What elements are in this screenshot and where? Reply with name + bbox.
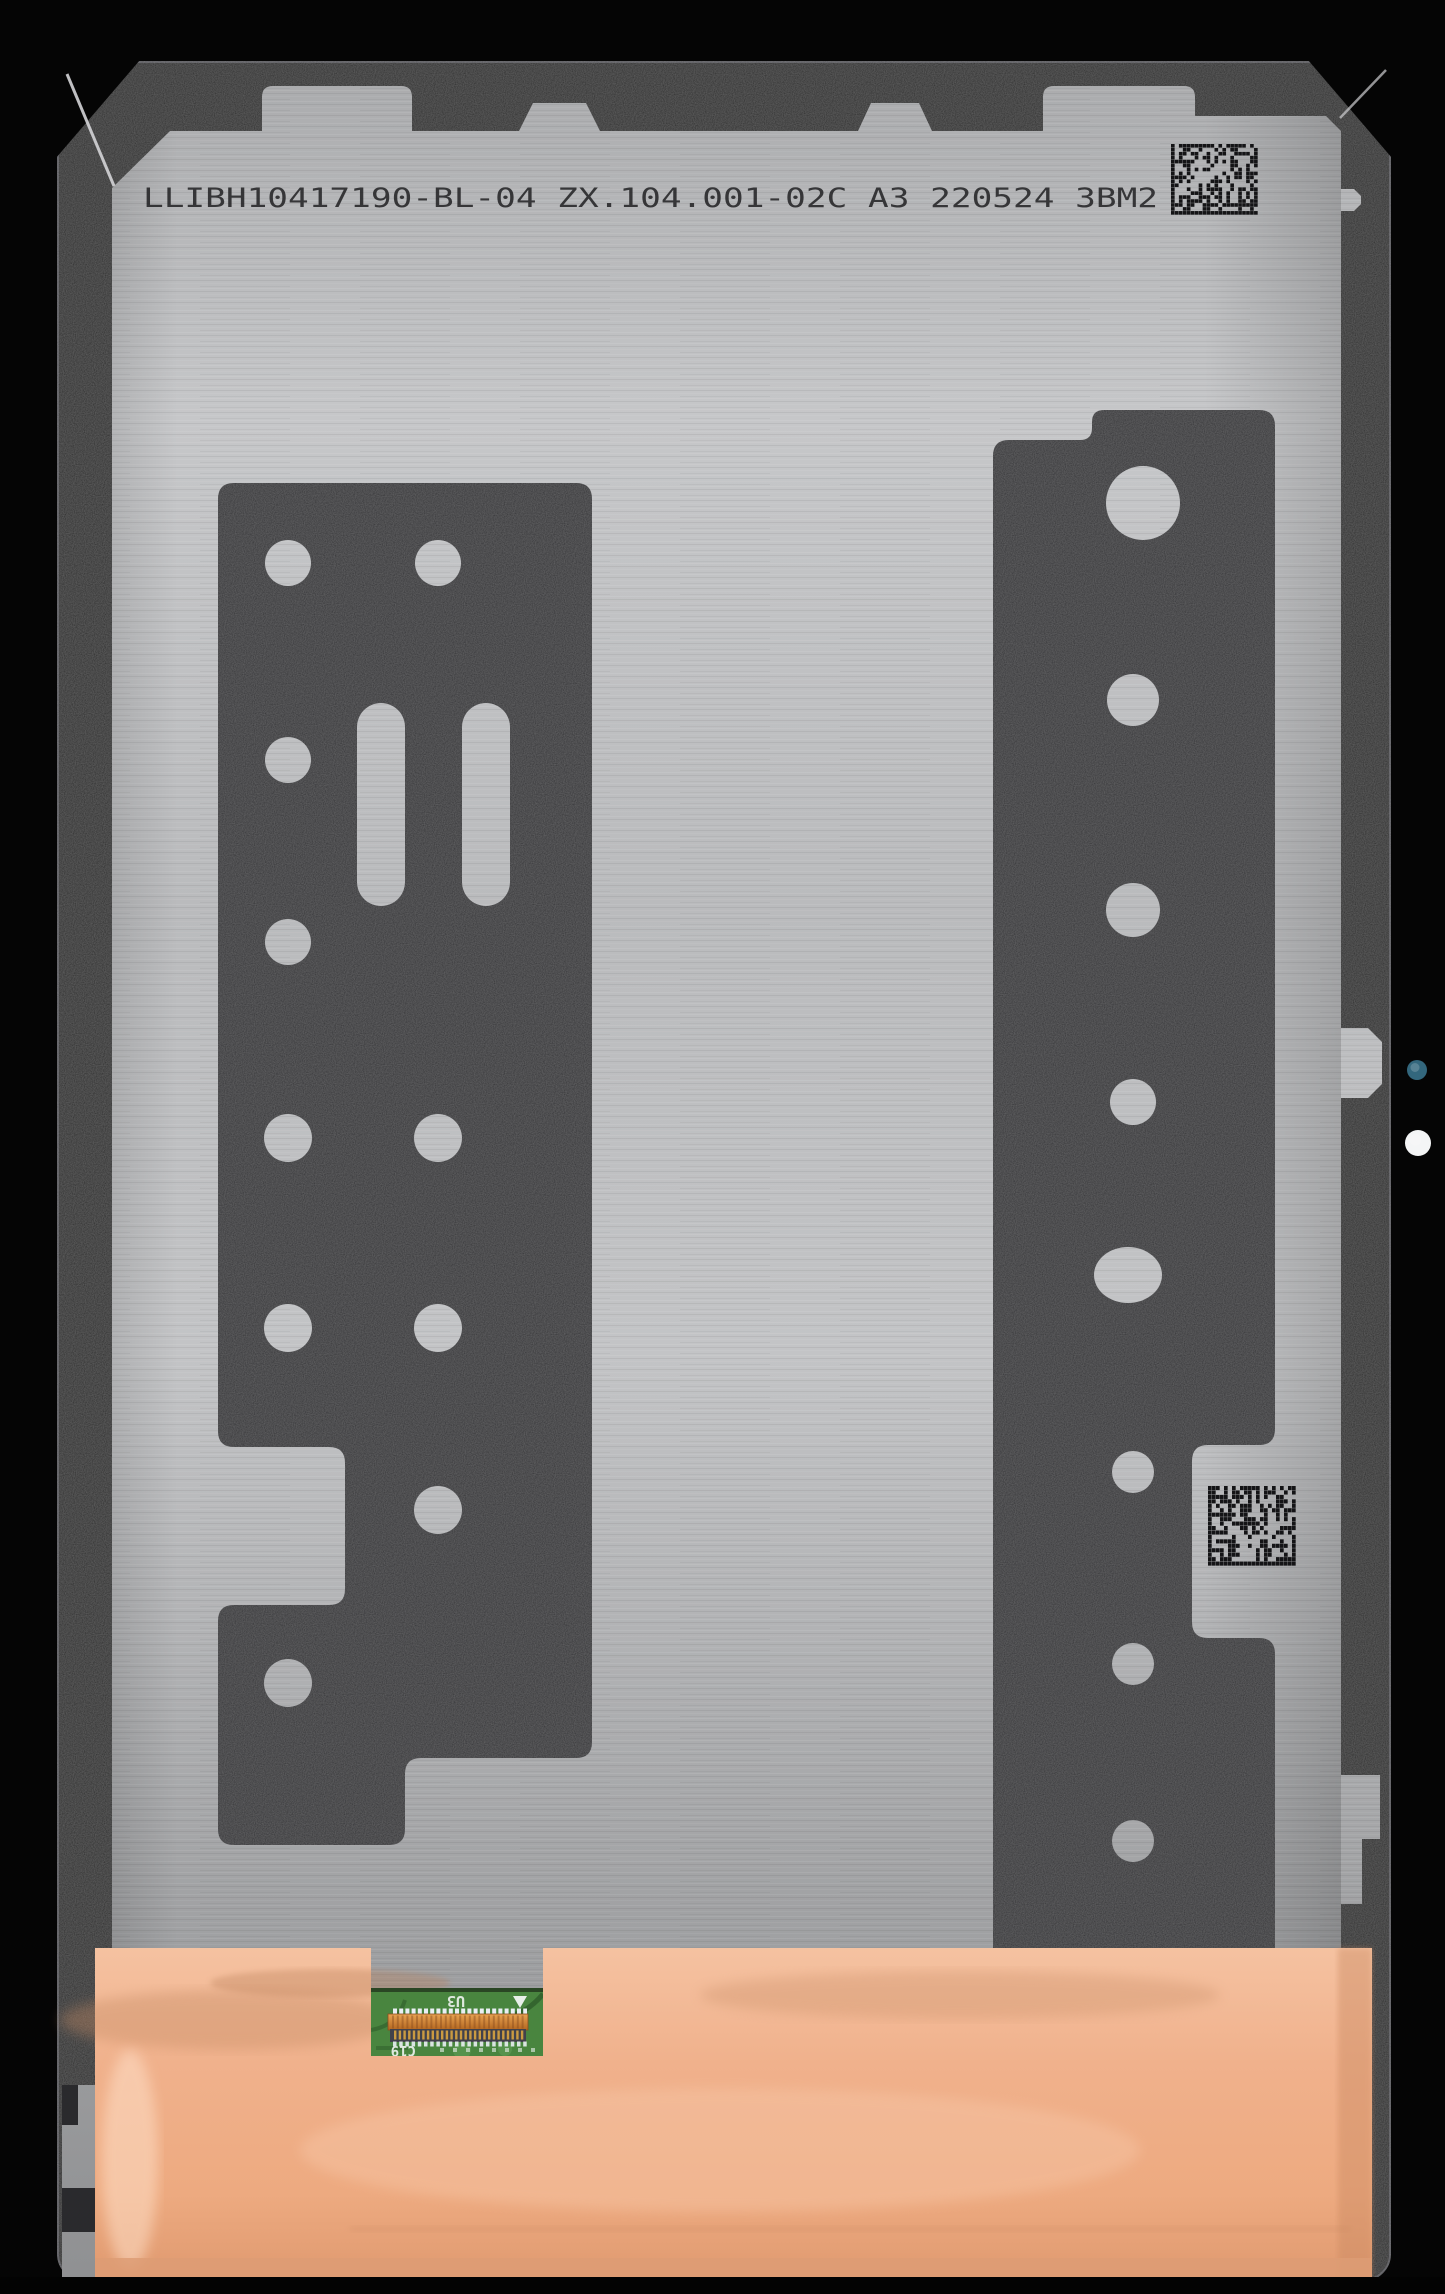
strip-hole-texture [1106,883,1160,937]
strip-hole-texture [414,1304,462,1352]
strip-hole-texture [1094,1247,1162,1303]
white-sensor-dot-highlight [1410,1134,1422,1146]
bottom-frame-strip [0,2277,1445,2294]
adhesive-strip-right [993,410,1275,1948]
strip-hole-texture [1112,1451,1154,1493]
photo-canvas: LLIBH10417190-BL-04 ZX.104.001-02C A3 22… [0,0,1445,2294]
copper-fold-shadow-right [700,1971,1220,2019]
strip-hole-texture [414,1486,462,1534]
copper-foil [60,1948,1372,2277]
pcb-window: U3 C19 [371,1988,543,2059]
copper-highlight-left [102,2050,158,2270]
strip-hole-texture [265,919,311,965]
strip-hole-texture [1107,674,1159,726]
strip-hole-texture [1106,466,1180,540]
strip-hole-texture [264,1114,312,1162]
copper-sheen [300,2088,1140,2212]
strip-hole-texture [1110,1079,1156,1125]
copper-edge-shadow-right [1338,1948,1372,2277]
strip-hole-texture [1112,1643,1154,1685]
etched-serial-text: LLIBH10417190-BL-04 ZX.104.001-02C A3 22… [143,183,1158,214]
pcb-top-edge [371,1988,543,1992]
strip-hole-texture [265,540,311,586]
strip-hole-texture [415,540,461,586]
strip-slot-texture [462,703,510,906]
strip-hole-texture [264,1304,312,1352]
strip-hole-texture [414,1114,462,1162]
adhesive-strip-left [218,483,592,1845]
strip-hole-texture [265,737,311,783]
board-connector-body [388,2014,528,2030]
copper-crease-line [350,2226,1350,2232]
product-photo-tablet-lcd-back: LLIBH10417190-BL-04 ZX.104.001-02C A3 22… [0,0,1445,2294]
strip-hole-texture [1112,1820,1154,1862]
silkscreen-u3: U3 [447,1992,465,2010]
copper-fold-shadow-left [60,1990,400,2050]
blue-camera-dot-highlight [1411,1063,1420,1072]
copper-bottom-strip [95,2258,1372,2277]
strip-slot-texture [357,703,405,906]
silkscreen-c19: C19 [391,2042,416,2058]
strip-hole-texture [264,1659,312,1707]
